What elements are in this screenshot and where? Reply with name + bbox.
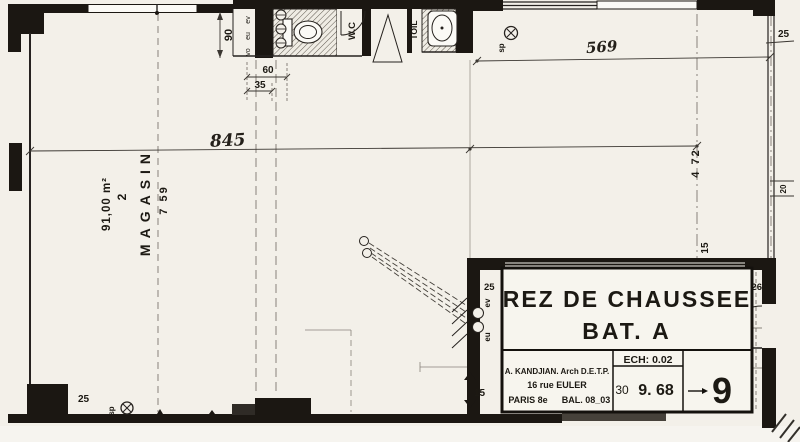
dim-label: 15 [474,388,486,399]
date-day: 30 [615,383,629,397]
dim-label: 25 [778,29,790,40]
dim-label: 35 [254,80,266,91]
architect-city: PARIS 8e [508,395,547,405]
pipe-label: vo [245,48,252,56]
pipe-stack-icon [276,10,286,48]
dimension-759: 7 59 [158,185,170,214]
dim-label: 90 [223,29,235,41]
room-area-label: 91,00 m² [101,177,113,231]
toil-room-label: TOIL [409,20,419,39]
dim-label: 60 [262,65,274,76]
sanitary-block: ev eu vo W.C TOIL [233,0,473,62]
sp-label: sp [107,406,116,415]
sheet-number: 9 [712,370,732,411]
drawing-title-line2: BAT. A [582,318,672,344]
dim-label: 569 [585,37,618,57]
dim-label: 25 [78,394,90,405]
title-block: REZ DE CHAUSSEE BAT. A A. KANDJIAN. Arch… [502,268,752,412]
dim-label: 7 59 [158,185,170,214]
dim-label: 20 [779,184,788,193]
wc-room-label: W.C [347,22,358,40]
architect-address: 16 rue EULER [527,380,587,390]
eu-drain-icon [473,322,484,333]
date-label: 9. 68 [638,382,674,399]
architect-phone: BAL. 08_03 [562,395,611,405]
dim-label: 15 [700,242,711,254]
drawing-title-line1: REZ DE CHAUSSEE [503,286,752,312]
ev-label: ev [483,298,492,307]
floor-plan-sheet: ev eu vo W.C TOIL 845 569 7 59 4 [0,0,800,442]
dim-label: 25 [484,282,495,293]
pipe-label: eu [245,32,252,40]
window-top-right [597,1,697,9]
room-name-label: MAGASIN [137,148,153,256]
sp-label: sp [497,43,506,52]
window-top-left [88,5,197,13]
eu-label: eu [483,332,492,341]
dim-label: 4 72 [690,148,702,177]
pipe-label: ev [245,16,252,24]
ev-drain-icon [473,308,484,319]
sink-fixture-icon [428,11,457,46]
paper-margin [0,426,800,442]
floor-plan-drawing: ev eu vo W.C TOIL 845 569 7 59 4 [0,0,800,442]
scale-label: ECH: 0.02 [623,354,672,366]
dim-label: 845 [208,130,245,152]
architect-name: A. KANDJIAN. Arch D.E.T.P. [505,367,609,376]
room-number-label: 2 [115,193,129,200]
